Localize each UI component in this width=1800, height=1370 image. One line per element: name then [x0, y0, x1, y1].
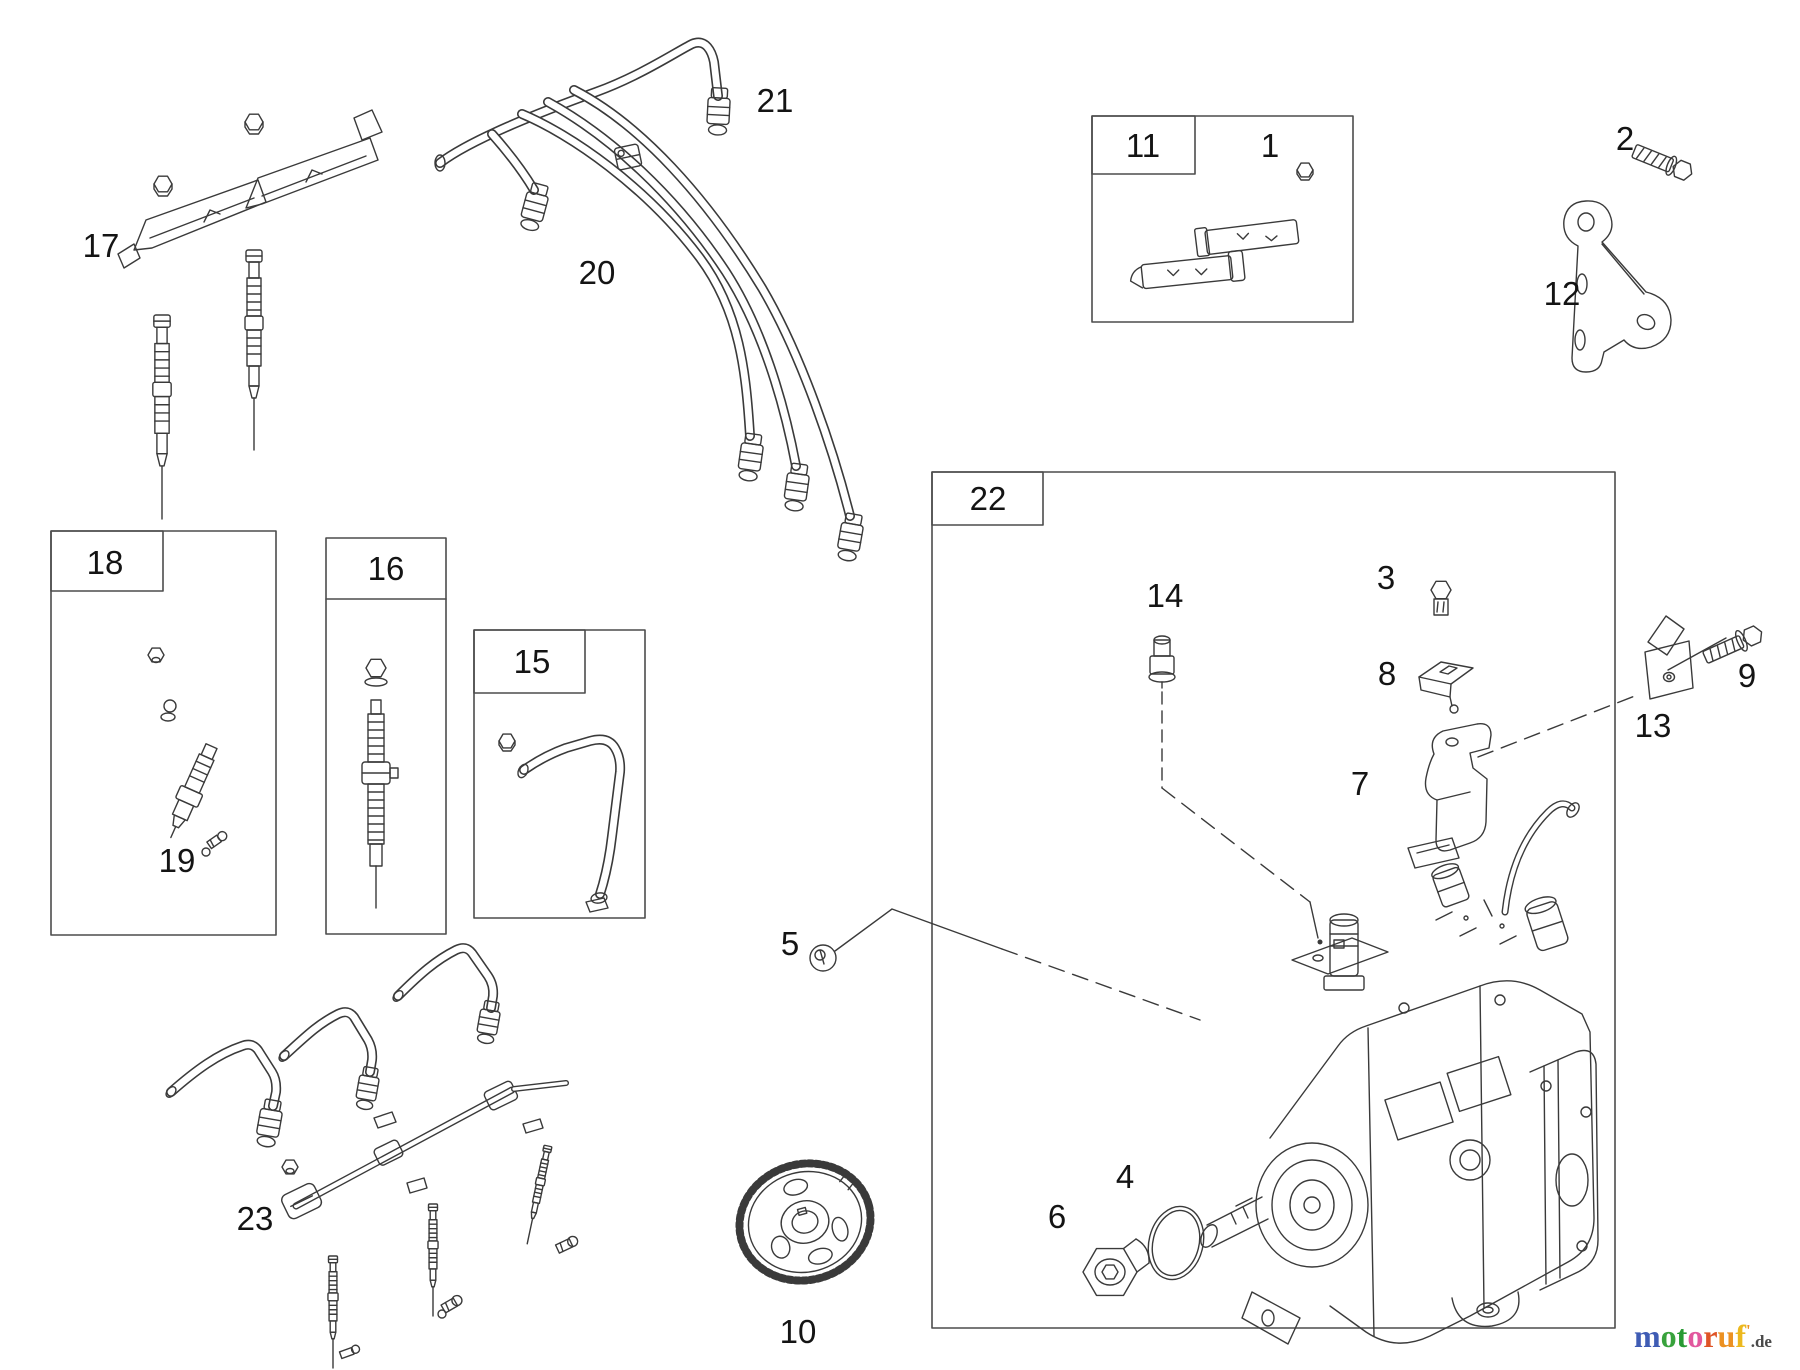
callout-6: 6 — [1048, 1198, 1066, 1235]
part-flange-nut-6 — [1083, 1239, 1149, 1295]
callout-3: 3 — [1377, 559, 1395, 596]
part-pipe-15 — [499, 734, 620, 912]
part-heat-shield-17 — [118, 110, 382, 268]
part-bracket-7 — [1408, 724, 1491, 868]
part-bracket-13 — [1645, 616, 1693, 699]
part-bolt-3 — [1431, 581, 1451, 615]
logo-word: motoruf — [1634, 1318, 1746, 1354]
part-glow-plug-left — [153, 315, 171, 519]
part-bolt-2 — [1630, 141, 1695, 183]
ref-box-22 — [932, 472, 1615, 1328]
leader-line-13 — [1478, 638, 1726, 757]
exploded-parts-diagram: 1234567891011121314151617181920212223 — [0, 0, 1800, 1370]
part-group-23 — [164, 948, 579, 1368]
callout-14: 14 — [1147, 577, 1184, 614]
leader-line-14 — [1162, 692, 1323, 945]
logo-letter: o — [1661, 1318, 1677, 1354]
callout-12: 12 — [1544, 275, 1581, 312]
parts-diagram-page: 1234567891011121314151617181920212223 mo… — [0, 0, 1800, 1370]
part-valve-14 — [1149, 636, 1175, 688]
callout-8: 8 — [1378, 655, 1396, 692]
leader-line-5 — [835, 909, 1200, 1020]
part-clip-8 — [1419, 662, 1473, 713]
callout-15: 15 — [514, 643, 551, 680]
callout-4: 4 — [1116, 1158, 1134, 1195]
callout-labels: 1234567891011121314151617181920212223 — [83, 82, 1757, 1350]
logo-letter: u — [1718, 1318, 1736, 1354]
logo-letter: t — [1677, 1318, 1688, 1354]
ref-box-16 — [326, 538, 446, 934]
part-injection-pump-22 — [1197, 801, 1598, 1344]
callout-22: 22 — [970, 480, 1007, 517]
callout-11: 11 — [1126, 127, 1160, 164]
part-injection-pipes-20-21 — [435, 43, 865, 563]
callout-19: 19 — [159, 842, 196, 879]
part-drive-gear-10 — [726, 1149, 884, 1295]
callout-23: 23 — [237, 1200, 274, 1237]
callout-18: 18 — [87, 544, 124, 581]
callout-10: 10 — [780, 1313, 817, 1350]
callout-5: 5 — [781, 925, 799, 962]
part-injector-18 — [148, 648, 229, 856]
callout-1: 1 — [1261, 127, 1279, 164]
callout-16: 16 — [368, 550, 405, 587]
part-glow-plug-right — [245, 250, 263, 450]
callout-17: 17 — [83, 227, 120, 264]
callout-7: 7 — [1351, 765, 1369, 802]
part-injector-16 — [362, 659, 398, 908]
callout-9: 9 — [1738, 657, 1756, 694]
logo-letter: o — [1687, 1318, 1703, 1354]
callout-20: 20 — [579, 254, 616, 291]
part-bolt-9 — [1700, 622, 1766, 667]
callout-2: 2 — [1616, 120, 1634, 157]
site-logo: motoruf'.de — [1634, 1320, 1772, 1352]
logo-letter: f — [1735, 1318, 1746, 1354]
logo-letter: r — [1703, 1318, 1717, 1354]
callout-13: 13 — [1635, 707, 1672, 744]
logo-letter: m — [1634, 1318, 1661, 1354]
part-washer-5 — [810, 945, 836, 971]
logo-domain-suffix: .de — [1751, 1332, 1772, 1351]
callout-21: 21 — [757, 82, 794, 119]
part-straps-11 — [1129, 163, 1313, 292]
